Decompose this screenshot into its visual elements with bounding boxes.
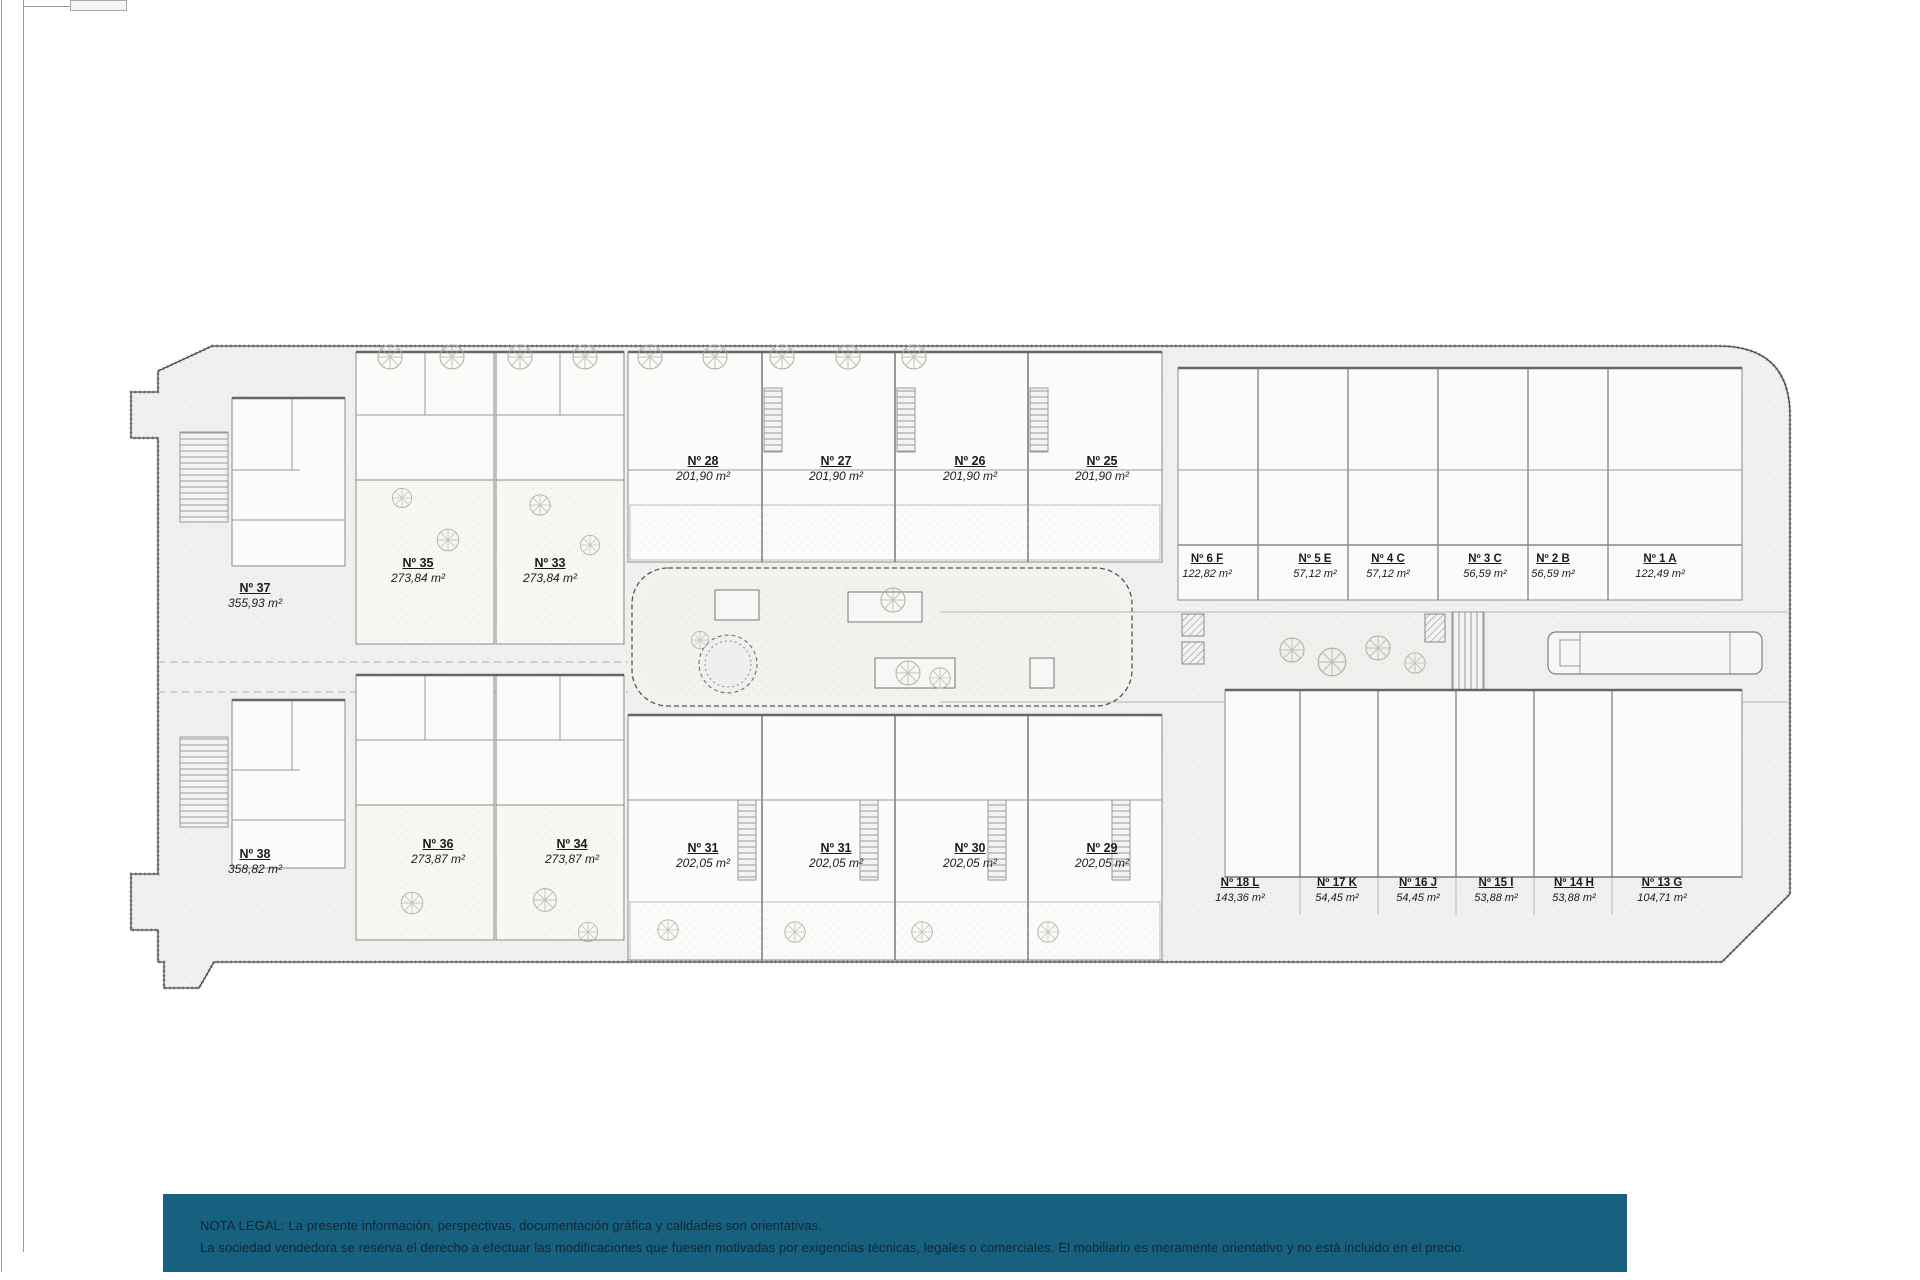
site-plan-drawing — [0, 0, 1920, 1280]
legal-note-banner: NOTA LEGAL: La presente información, per… — [163, 1194, 1627, 1272]
legal-note-line1: NOTA LEGAL: La presente información, per… — [200, 1215, 822, 1237]
townhouses-31-29-block — [628, 715, 1162, 960]
apartments-6F-1A-block — [1178, 368, 1742, 600]
townhouses-28-25-block — [628, 352, 1162, 562]
villa-36-34-block — [356, 675, 624, 940]
villa-37-block — [232, 398, 345, 566]
courtyard-pool-garden — [632, 568, 1132, 706]
villa-38-block — [232, 700, 345, 868]
legal-note-line2: La sociedad vendedora se reserva el dere… — [200, 1237, 1465, 1259]
site-plan: Nº 37 355,93 m² Nº 35 273,84 m² Nº 33 27… — [0, 0, 1920, 1280]
